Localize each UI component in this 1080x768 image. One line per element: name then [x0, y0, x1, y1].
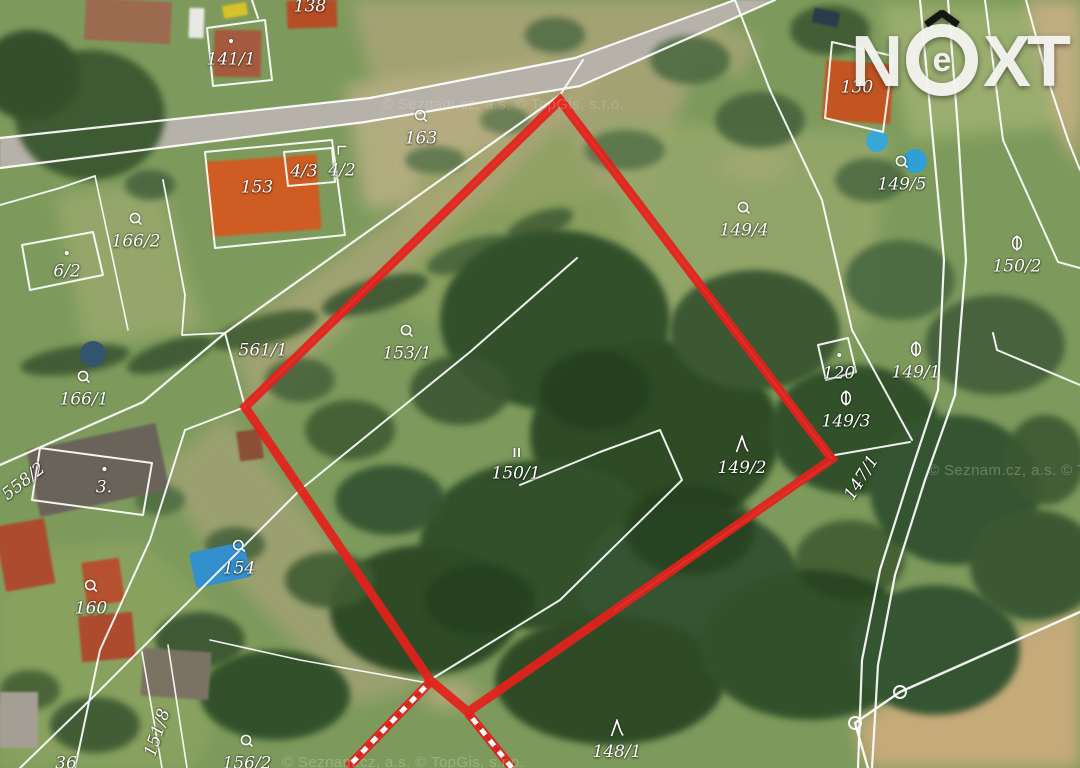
logo-letter-x: X [983, 27, 1027, 97]
logo-letter-t: T [1027, 27, 1067, 97]
logo-letter-e: e [933, 43, 952, 77]
aerial-canvas [0, 0, 1080, 768]
copyright-watermark: © Seznam.cz, a.s. © TopGis, s.r.o. [282, 754, 524, 768]
logo-letter-n: N [851, 27, 899, 97]
copyright-watermark: © Seznam.cz, a.s. © TopGis, s.r.o. [382, 96, 624, 113]
logo-ring: e [906, 24, 978, 96]
aerial-map-image: 138141/11634/24/3153166/26/2166/1561/115… [0, 0, 1080, 768]
copyright-watermark: © Seznam.cz, a.s. © TopGis, s.r.o. [928, 462, 1080, 479]
next-logo: N e X T [851, 24, 1067, 97]
